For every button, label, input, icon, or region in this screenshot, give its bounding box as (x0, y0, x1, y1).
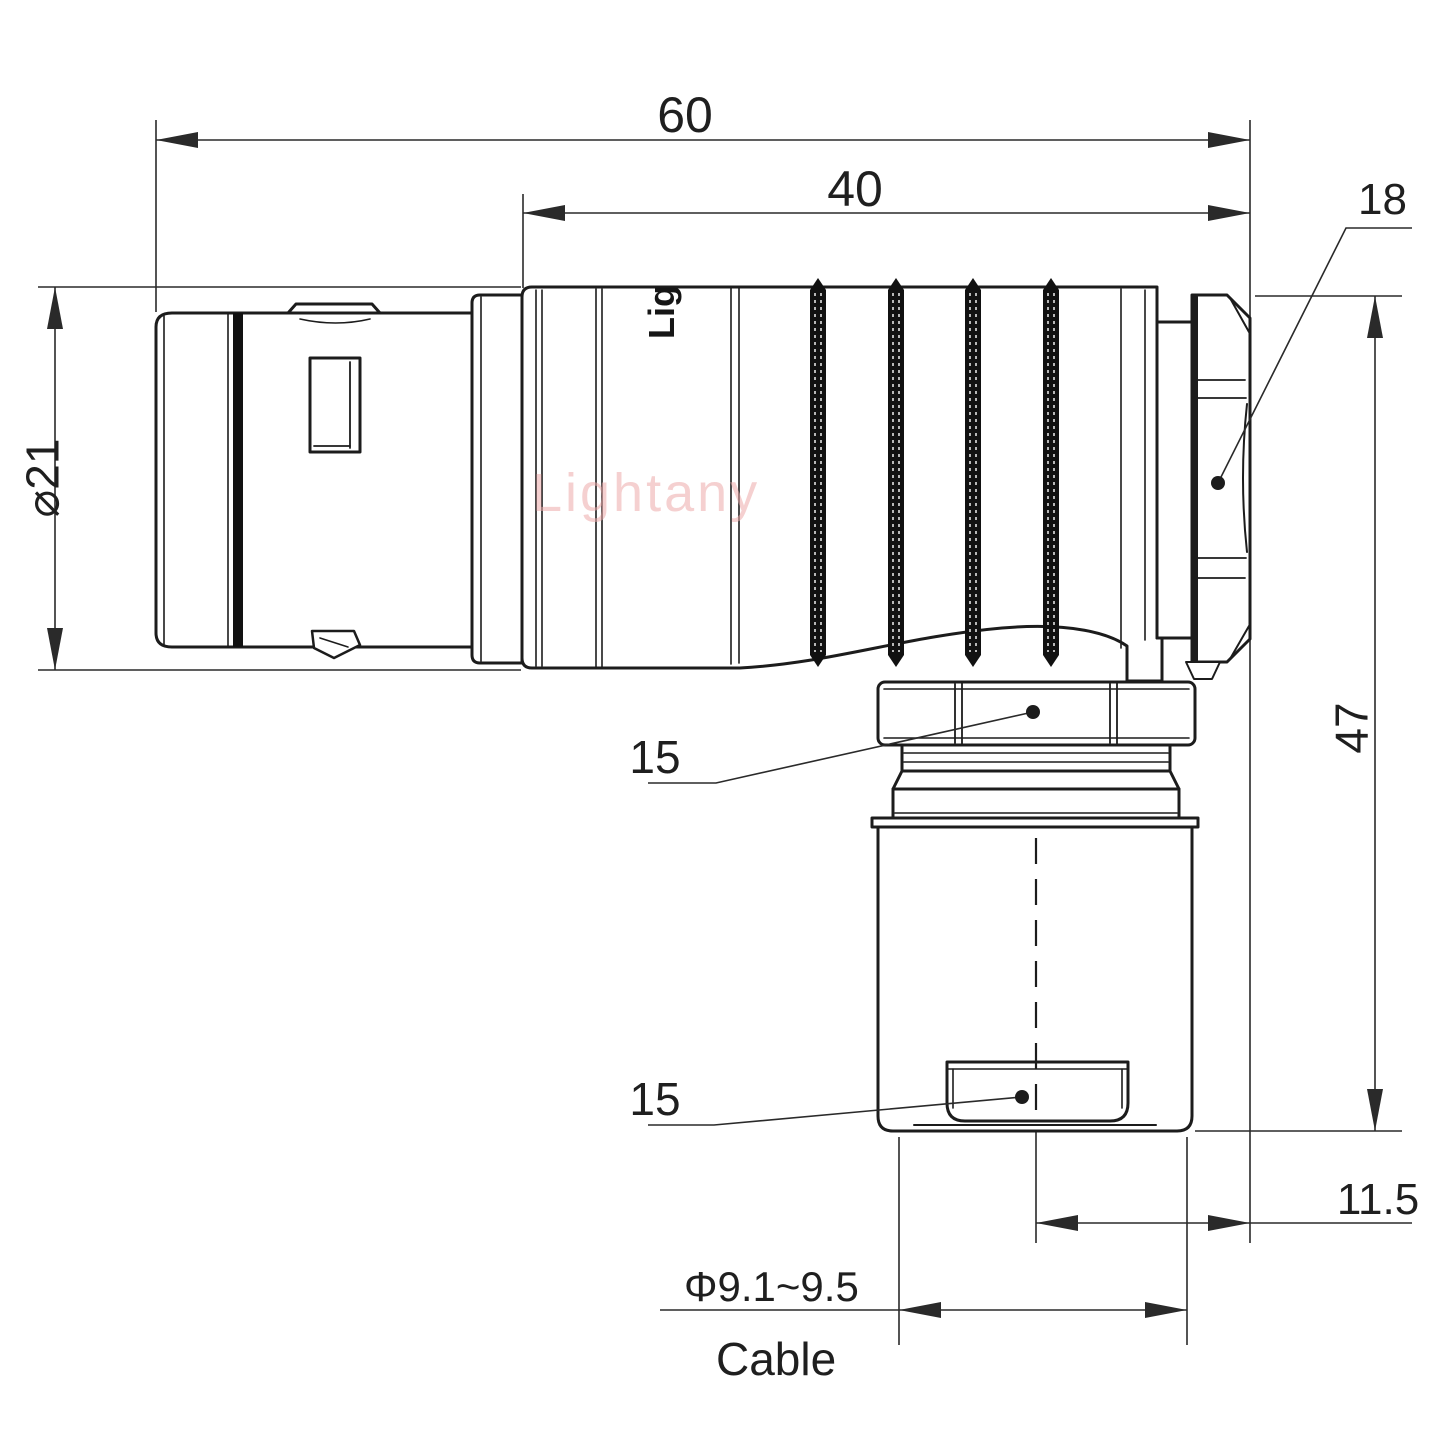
elbow-ring (902, 745, 1170, 771)
body-marking: Lig (630, 284, 694, 340)
technical-drawing-page: 60 40 18 ⌀21 47 15 15 11.5 Φ9.1~9.5 Cabl… (0, 0, 1440, 1440)
elbow-collar (893, 789, 1179, 820)
drawing-canvas (0, 0, 1440, 1440)
dim-shell-diameter-text: ⌀21 (19, 439, 65, 518)
shell-window (310, 358, 360, 452)
dim-height-text: 47 (1329, 702, 1375, 753)
cable-label: Cable (716, 1336, 836, 1382)
shell-black-band (233, 313, 243, 647)
dim-center-offset-label: 11.5 (1316, 1178, 1440, 1222)
dim-elbow-nut-upper-label: 15 (610, 734, 700, 780)
elbow-flare (893, 771, 1179, 789)
dim-backnut-label: 18 (1340, 178, 1425, 222)
dim-overall-length-label: 60 (640, 90, 730, 140)
cable-diameter-label: Φ9.1~9.5 (684, 1266, 859, 1308)
shell-latch (312, 631, 360, 658)
shell-top-key (288, 304, 380, 313)
dim-height-label: 47 (1302, 678, 1402, 778)
dim-elbow-nut-lower-label: 15 (610, 1076, 700, 1122)
watermark: Lightany (532, 466, 760, 520)
flange-ring (472, 295, 522, 663)
dim-housing-length-label: 40 (810, 164, 900, 214)
connector-body (156, 287, 1250, 1131)
cable-clamp-window (947, 1062, 1128, 1121)
body-marking-text: Lig (641, 285, 683, 339)
nut-neck (1157, 322, 1192, 638)
dim-shell-diameter-label: ⌀21 (0, 428, 92, 528)
